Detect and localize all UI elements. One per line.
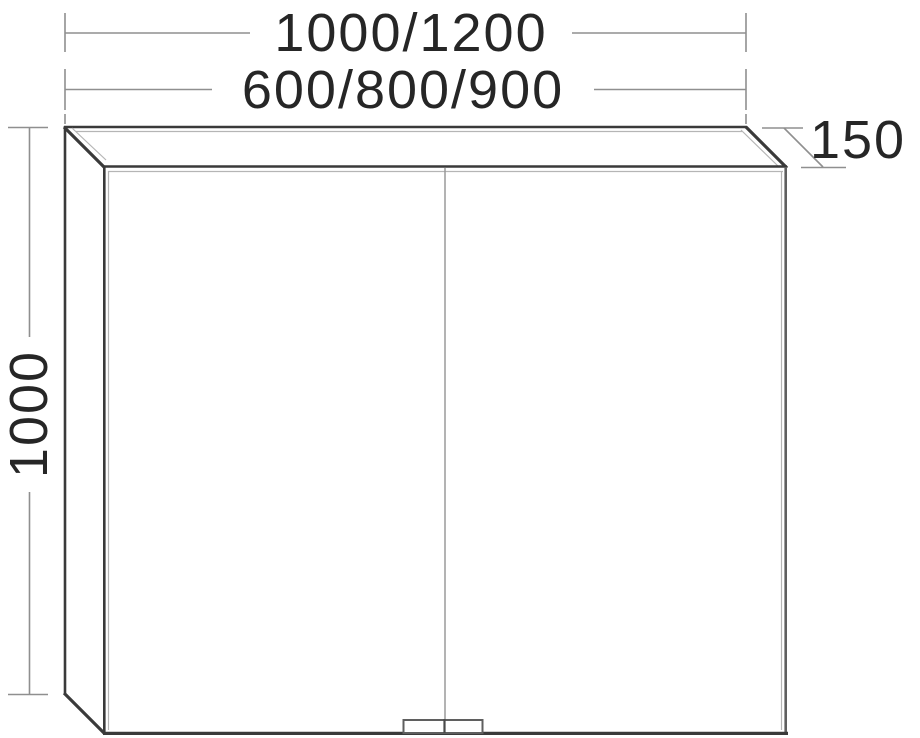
- depth-dimension: 150: [762, 110, 906, 170]
- drawing-svg: 1000/1200 600/800/900 1000 150: [0, 0, 920, 738]
- cabinet-depth-edges: [64, 127, 787, 734]
- handle-outline: [404, 720, 483, 733]
- height-label: 1000: [0, 350, 59, 478]
- top-left-corner-edge-inner: [72, 128, 106, 160]
- bottom-left-corner-edge: [64, 693, 105, 734]
- top-left-corner-edge: [64, 127, 105, 168]
- top-right-corner-edge-inner: [741, 130, 779, 167]
- cabinet-back-panel: [64, 126, 747, 693]
- top-right-corner-edge: [746, 127, 787, 168]
- width-dimension-outer: 1000/1200: [65, 3, 746, 63]
- door-handle: [404, 719, 483, 733]
- technical-drawing: 1000/1200 600/800/900 1000 150: [0, 0, 920, 738]
- height-dimension: 1000: [0, 128, 59, 695]
- cabinet-front-face: [103, 166, 788, 734]
- width-outer-label: 1000/1200: [274, 3, 547, 63]
- depth-label: 150: [810, 110, 906, 170]
- width-inner-label: 600/800/900: [242, 60, 564, 120]
- width-dimension-inner: 600/800/900: [65, 60, 746, 120]
